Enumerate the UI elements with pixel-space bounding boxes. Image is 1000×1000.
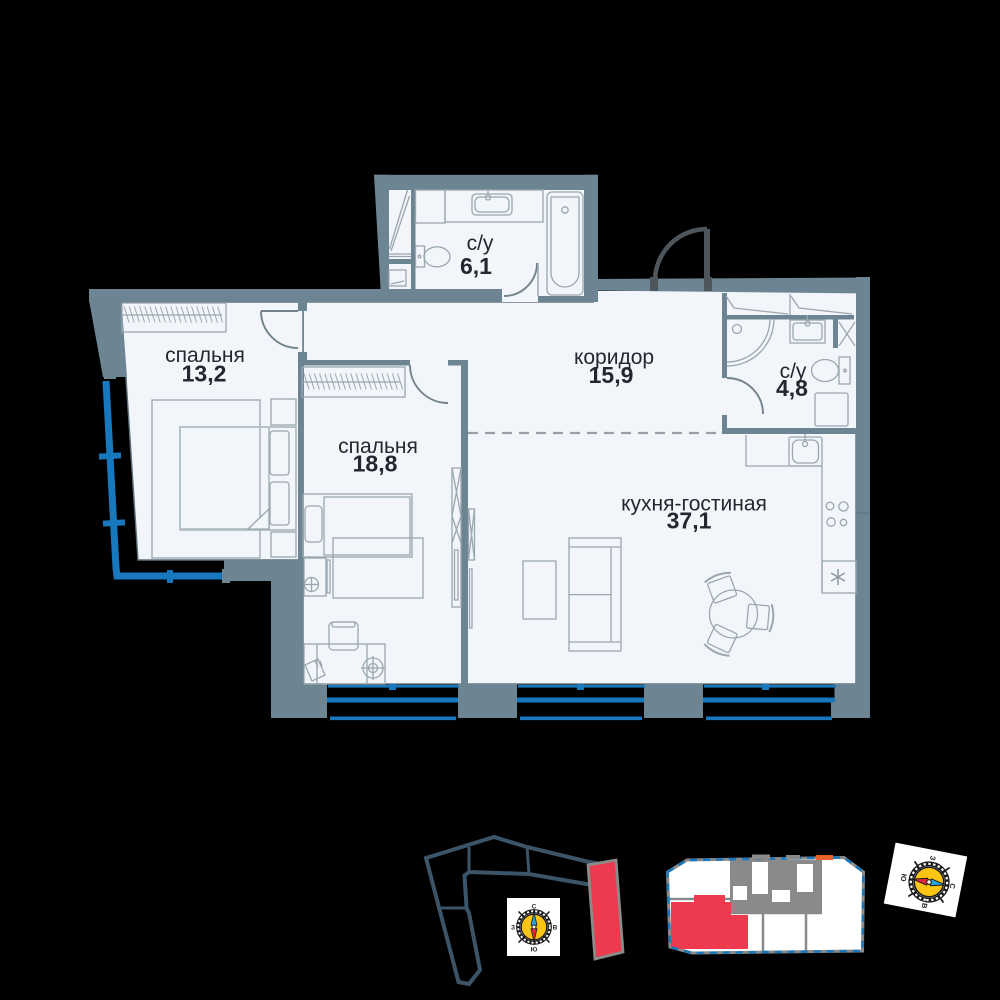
svg-text:З: З [511, 925, 515, 932]
svg-text:Ю: Ю [531, 947, 538, 954]
svg-text:с/у: с/у [467, 232, 494, 255]
svg-text:4,8: 4,8 [776, 375, 808, 401]
svg-text:15,9: 15,9 [589, 362, 634, 388]
svg-text:С: С [532, 904, 537, 911]
svg-text:37,1: 37,1 [667, 508, 712, 534]
svg-text:В: В [553, 925, 558, 932]
svg-text:18,8: 18,8 [353, 451, 398, 477]
svg-text:13,2: 13,2 [182, 361, 227, 387]
svg-text:6,1: 6,1 [460, 253, 492, 279]
